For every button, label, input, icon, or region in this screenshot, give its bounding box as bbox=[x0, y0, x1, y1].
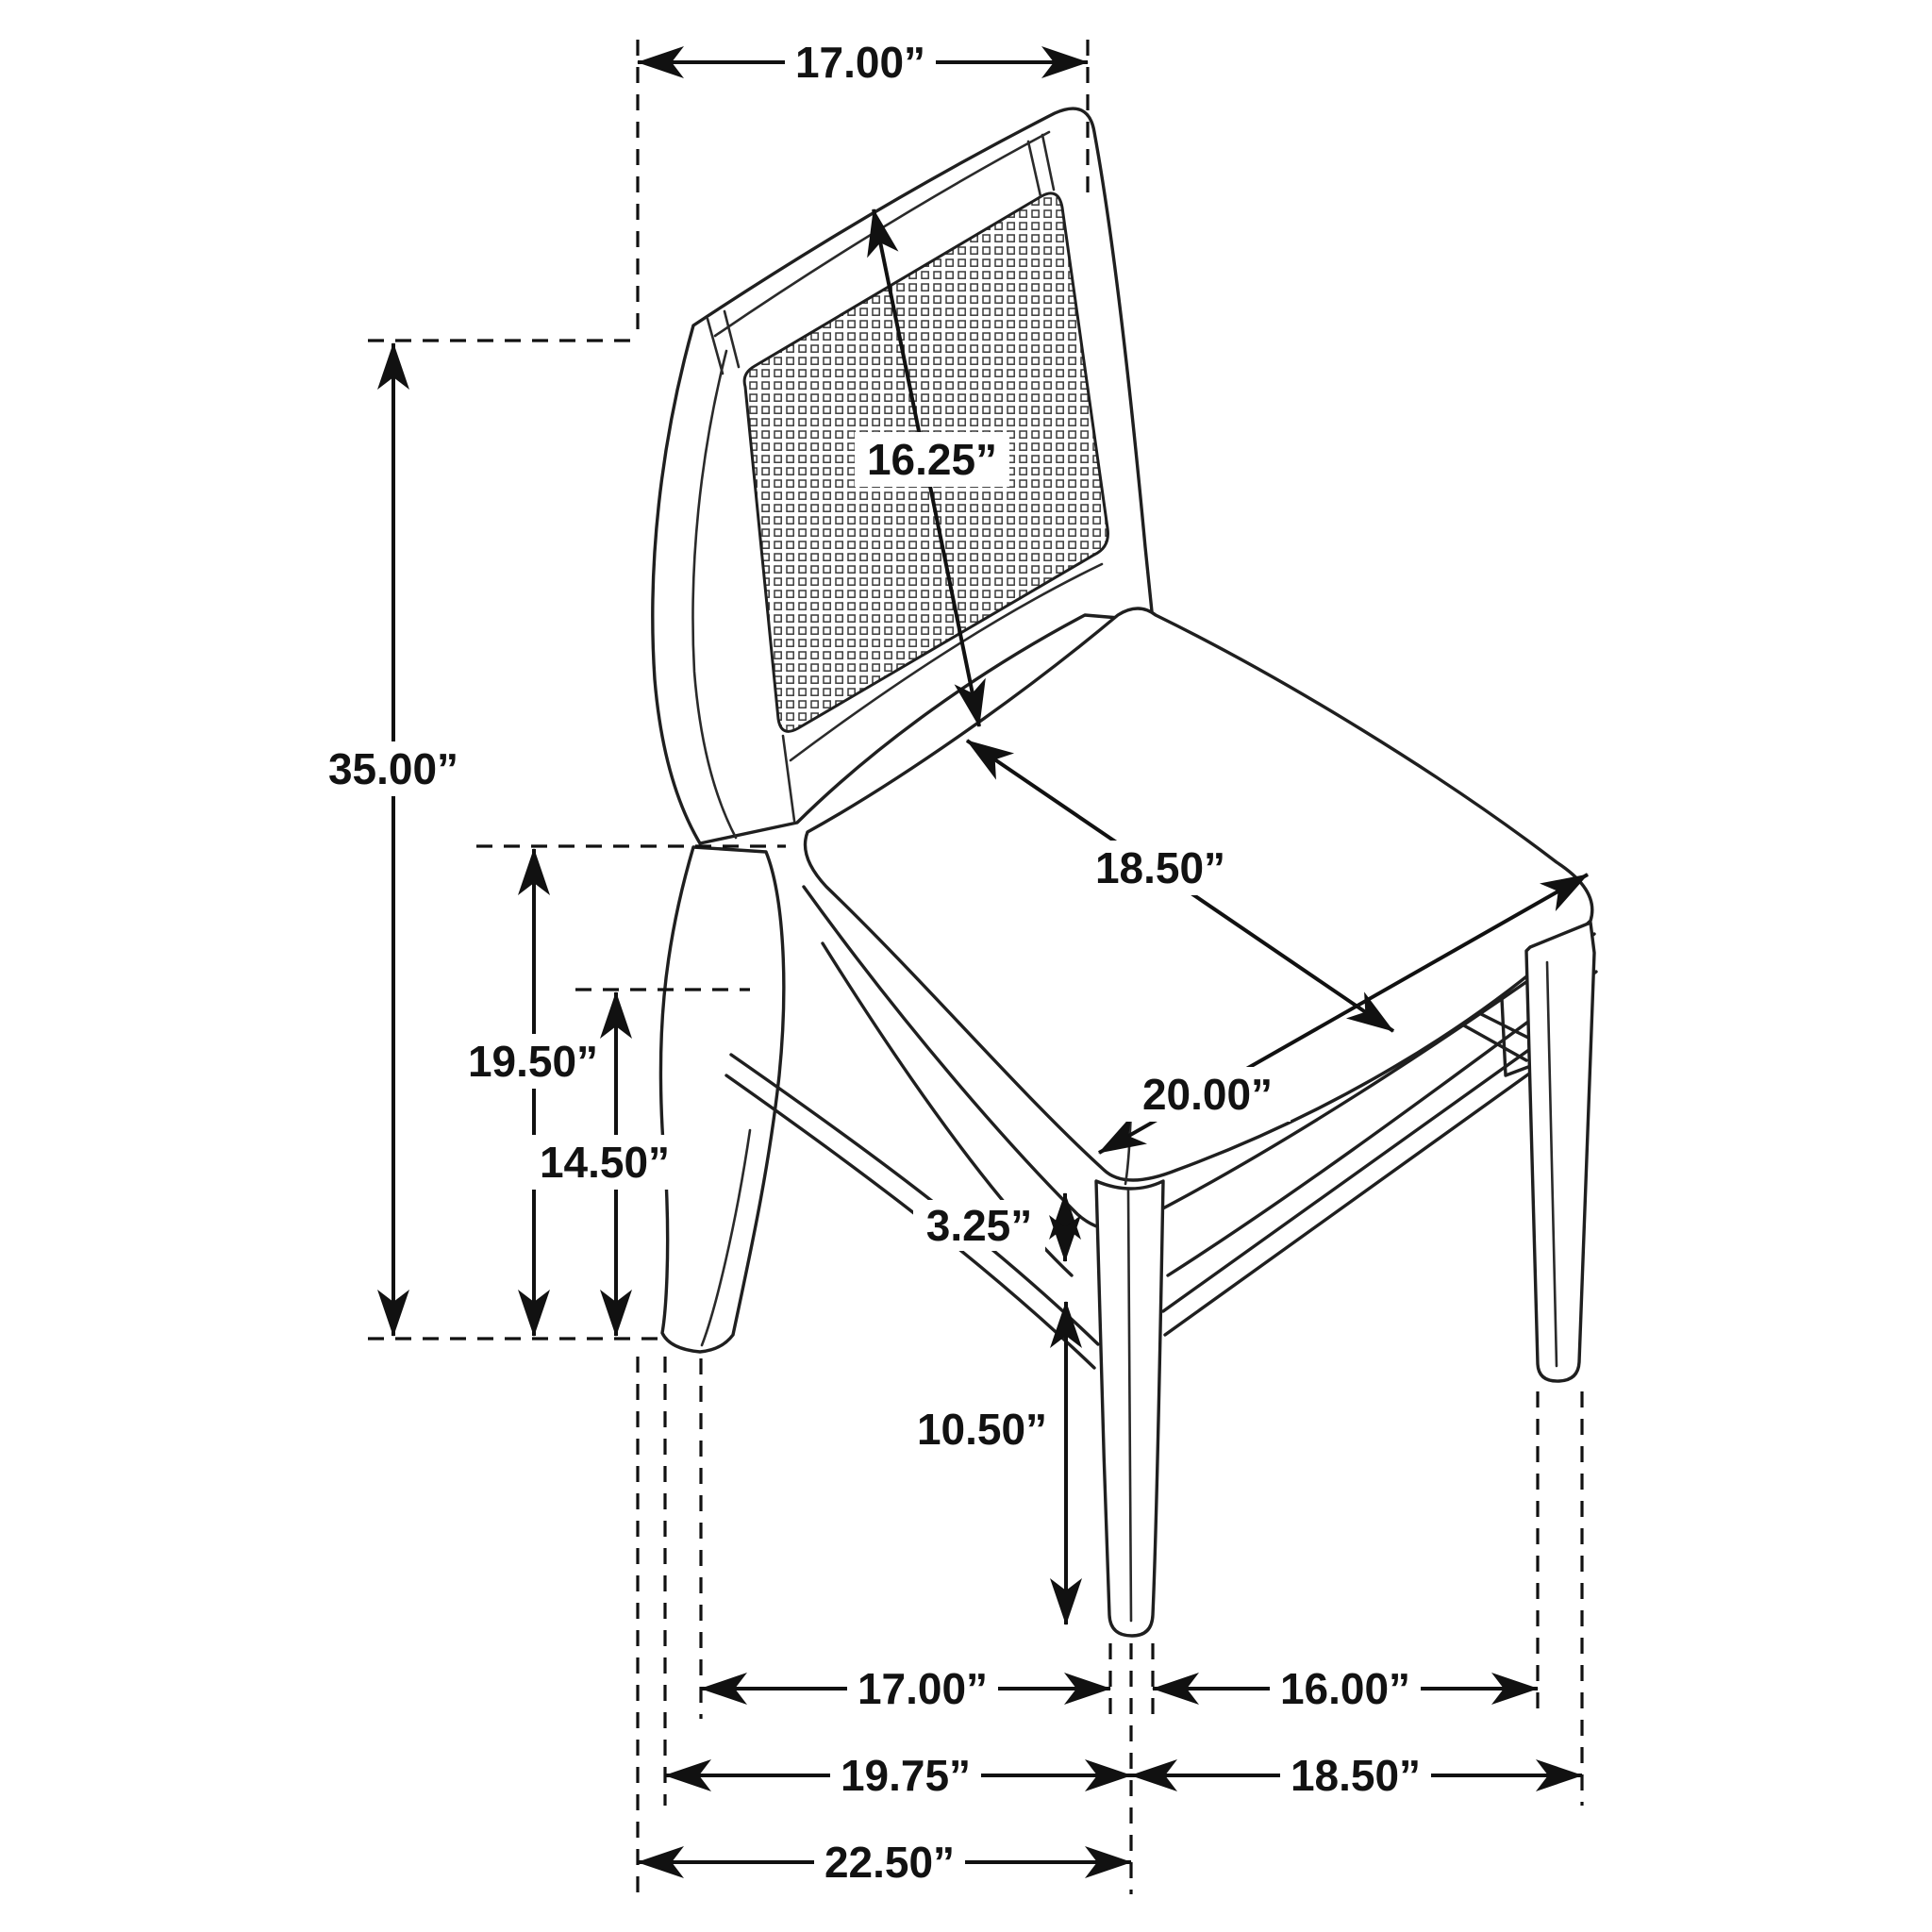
seat-width-label: 20.00” bbox=[1142, 1070, 1273, 1119]
dim-leg-span-side: 17.00” bbox=[701, 1662, 1110, 1715]
overall-depth-label: 22.50” bbox=[824, 1838, 955, 1887]
dim-overall-depth: 22.50” bbox=[638, 1836, 1131, 1889]
overall-height-label: 35.00” bbox=[328, 744, 458, 793]
dim-footprint-depth: 19.75” bbox=[665, 1749, 1131, 1802]
back-width-label: 17.00” bbox=[795, 38, 925, 87]
dim-footprint-width: 18.50” bbox=[1131, 1749, 1582, 1802]
stretcher-gap-label: 3.25” bbox=[926, 1201, 1033, 1250]
front-right-leg bbox=[1526, 923, 1594, 1381]
seat-height-label: 19.50” bbox=[468, 1037, 598, 1086]
apron-height-label: 14.50” bbox=[540, 1138, 670, 1187]
dim-stretcher-gap: 3.25” bbox=[913, 1193, 1065, 1261]
front-leg-height-label: 10.50” bbox=[917, 1405, 1047, 1454]
back-panel-height-label: 16.25” bbox=[867, 435, 997, 484]
footprint-width-label: 18.50” bbox=[1291, 1751, 1421, 1800]
leg-span-front-label: 16.00” bbox=[1280, 1664, 1410, 1713]
dim-leg-span-front: 16.00” bbox=[1153, 1662, 1538, 1715]
diagram-canvas: 17.00” 16.25” 35.00” 19.50” bbox=[0, 0, 1932, 1932]
footprint-depth-label: 19.75” bbox=[841, 1751, 971, 1800]
seat-depth-label: 18.50” bbox=[1095, 843, 1225, 892]
dim-front-leg-height: 10.50” bbox=[904, 1302, 1066, 1624]
leg-span-side-label: 17.00” bbox=[858, 1664, 988, 1713]
chair-dimension-diagram: 17.00” 16.25” 35.00” 19.50” bbox=[0, 0, 1932, 1932]
